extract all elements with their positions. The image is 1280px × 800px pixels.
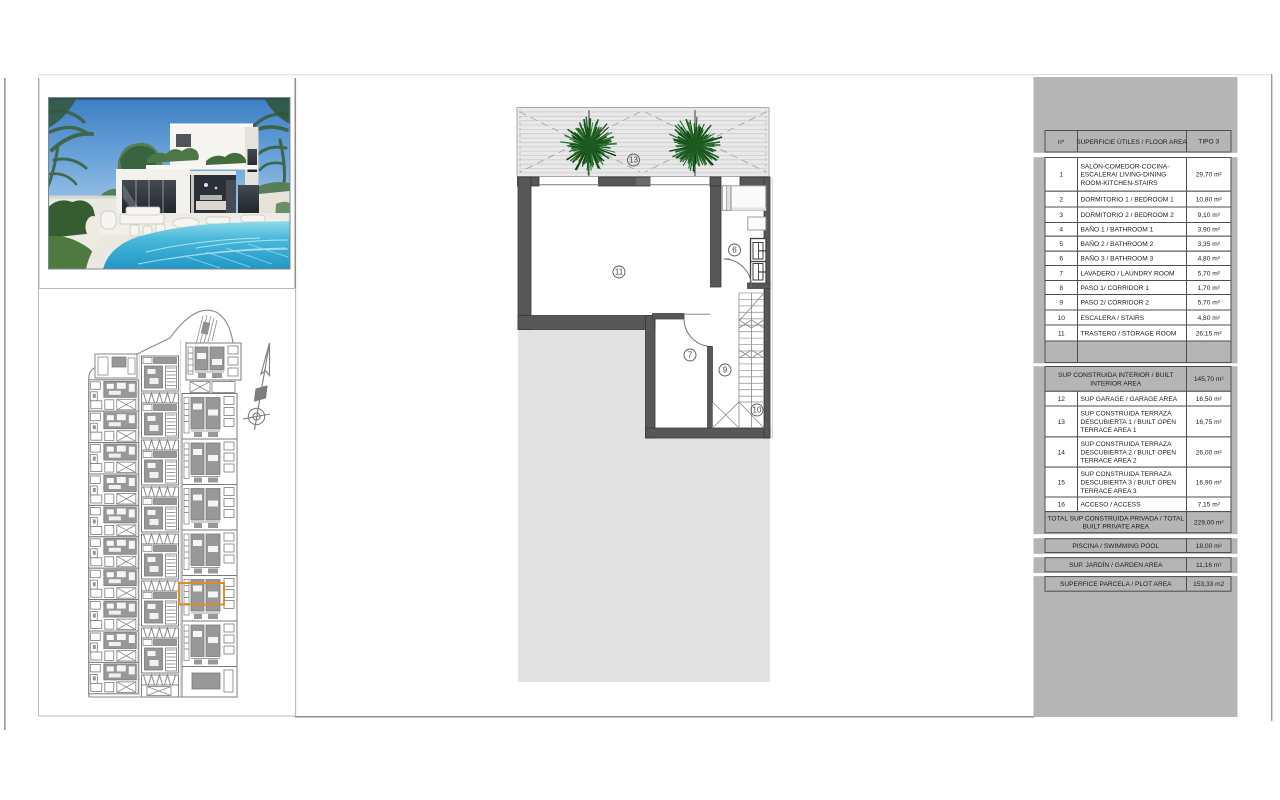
svg-text:229,00 m²: 229,00 m² (1194, 520, 1224, 527)
svg-text:SUPERFICIE ÚTILES / FLOOR AREA: SUPERFICIE ÚTILES / FLOOR AREA (1076, 137, 1187, 146)
svg-text:15: 15 (1058, 479, 1066, 486)
svg-text:DORMITORIO 2 / BEDROOM 2: DORMITORIO 2 / BEDROOM 2 (1081, 212, 1175, 219)
svg-text:ROOM-KITCHEN-STAIRS: ROOM-KITCHEN-STAIRS (1081, 180, 1159, 187)
svg-text:TERRACE AREA 2: TERRACE AREA 2 (1081, 458, 1137, 465)
svg-text:BAÑO 2 / BATHROOM 2: BAÑO 2 / BATHROOM 2 (1081, 239, 1154, 248)
svg-text:14: 14 (1058, 449, 1066, 456)
svg-text:TIPO 3: TIPO 3 (1198, 139, 1219, 146)
svg-text:12: 12 (1058, 396, 1066, 403)
svg-text:11,16 m²: 11,16 m² (1196, 562, 1222, 569)
svg-text:16,75 m²: 16,75 m² (1196, 419, 1223, 426)
svg-text:153,33 m2: 153,33 m2 (1193, 581, 1224, 588)
svg-text:16,50 m²: 16,50 m² (1196, 396, 1223, 403)
svg-text:6: 6 (1059, 256, 1063, 263)
svg-text:DORMITORIO 1 / BEDROOM 1: DORMITORIO 1 / BEDROOM 1 (1081, 196, 1175, 203)
svg-text:BAÑO 3 / BATHROOM 3: BAÑO 3 / BATHROOM 3 (1081, 254, 1154, 263)
svg-text:5,70 m²: 5,70 m² (1198, 300, 1221, 307)
svg-text:DESCUBIERTA 3 / BUILT OPEN: DESCUBIERTA 3 / BUILT OPEN (1081, 479, 1177, 486)
svg-text:TERRACE AREA 3: TERRACE AREA 3 (1081, 488, 1137, 495)
svg-text:SUP CONSTRUIDA TERRAZA: SUP CONSTRUIDA TERRAZA (1081, 471, 1173, 478)
svg-text:ACCESO / ACCESS: ACCESO / ACCESS (1081, 502, 1142, 509)
svg-text:3,35 m²: 3,35 m² (1198, 241, 1221, 248)
svg-text:7: 7 (688, 351, 693, 360)
svg-text:7: 7 (1059, 270, 1063, 277)
svg-text:16,90 m²: 16,90 m² (1196, 479, 1223, 486)
svg-text:16: 16 (1058, 502, 1066, 509)
svg-text:8: 8 (1059, 285, 1063, 292)
svg-text:BUILT PRIVATE AREA: BUILT PRIVATE AREA (1082, 524, 1149, 531)
svg-text:7,15 m²: 7,15 m² (1198, 502, 1221, 509)
svg-text:ESCALERA/ LIVING-DINING: ESCALERA/ LIVING-DINING (1081, 172, 1167, 179)
svg-text:26,15 m²: 26,15 m² (1196, 330, 1223, 337)
svg-text:13: 13 (629, 156, 638, 165)
svg-text:18,00 m²: 18,00 m² (1196, 543, 1223, 550)
svg-text:TERRACE AREA 1: TERRACE AREA 1 (1081, 427, 1137, 434)
svg-text:PISCINA / SWIMMING POOL: PISCINA / SWIMMING POOL (1072, 543, 1159, 550)
svg-text:SUP GARAGE / GARAGE AREA: SUP GARAGE / GARAGE AREA (1081, 396, 1178, 403)
svg-text:1,70 m²: 1,70 m² (1198, 285, 1221, 292)
svg-text:SUP CONSTRUIDA TERRAZA: SUP CONSTRUIDA TERRAZA (1081, 441, 1173, 448)
svg-text:SALÓN-COMEDOR-COCINA-: SALÓN-COMEDOR-COCINA- (1081, 161, 1170, 170)
svg-text:SUP CONSTRUIDA INTERIOR / BUIL: SUP CONSTRUIDA INTERIOR / BUILT (1058, 372, 1174, 379)
svg-text:5,70 m²: 5,70 m² (1198, 270, 1221, 277)
svg-text:PASO 1/ CORRIDOR 1: PASO 1/ CORRIDOR 1 (1081, 285, 1150, 292)
svg-text:13: 13 (1058, 419, 1066, 426)
svg-text:11: 11 (615, 268, 624, 277)
svg-text:TRASTERO / STORAGE ROOM: TRASTERO / STORAGE ROOM (1081, 330, 1177, 337)
svg-text:11: 11 (1058, 330, 1065, 337)
svg-text:10: 10 (1058, 315, 1066, 322)
svg-text:9,10 m²: 9,10 m² (1198, 212, 1221, 219)
svg-text:145,70 m²: 145,70 m² (1194, 376, 1224, 383)
svg-text:SUP CONSTRUIDA TERRAZA: SUP CONSTRUIDA TERRAZA (1081, 410, 1173, 417)
svg-text:5: 5 (1059, 241, 1063, 248)
svg-text:DESCUBIERTA 2 / BUILT OPEN: DESCUBIERTA 2 / BUILT OPEN (1081, 449, 1177, 456)
svg-text:10: 10 (753, 406, 762, 415)
svg-text:nº: nº (1058, 139, 1065, 146)
svg-text:SUPERFICE PARCELA / PLOT AREA: SUPERFICE PARCELA / PLOT AREA (1060, 581, 1172, 588)
svg-text:2: 2 (1059, 196, 1063, 203)
svg-text:SUP. JARDÍN / GARDEN AREA: SUP. JARDÍN / GARDEN AREA (1069, 560, 1163, 569)
svg-text:9: 9 (1059, 300, 1063, 307)
svg-text:10,80 m²: 10,80 m² (1196, 196, 1223, 203)
svg-text:9: 9 (723, 366, 728, 375)
svg-text:INTERIOR AREA: INTERIOR AREA (1090, 380, 1142, 387)
svg-text:DESCUBIERTA 1 / BUILT OPEN: DESCUBIERTA 1 / BUILT OPEN (1081, 419, 1177, 426)
svg-text:LAVADERO / LAUNDRY ROOM: LAVADERO / LAUNDRY ROOM (1081, 270, 1175, 277)
svg-text:1: 1 (1059, 172, 1063, 179)
svg-text:ESCALERA / STAIRS: ESCALERA / STAIRS (1081, 315, 1145, 322)
svg-text:4: 4 (1059, 227, 1063, 234)
svg-text:PASO 2/ CORRIDOR 2: PASO 2/ CORRIDOR 2 (1081, 300, 1150, 307)
svg-text:26,00 m²: 26,00 m² (1196, 449, 1223, 456)
svg-text:TOTAL SUP CONSTRUIDA PRIVADA /: TOTAL SUP CONSTRUIDA PRIVADA / TOTAL (1047, 515, 1184, 522)
svg-text:4,80 m²: 4,80 m² (1198, 315, 1221, 322)
svg-text:29,70 m²: 29,70 m² (1196, 172, 1223, 179)
svg-text:BAÑO 1 / BATHROOM 1: BAÑO 1 / BATHROOM 1 (1081, 225, 1154, 234)
svg-text:6: 6 (732, 246, 737, 255)
svg-text:3,90 m²: 3,90 m² (1198, 227, 1221, 234)
svg-text:4,80 m²: 4,80 m² (1198, 256, 1221, 263)
svg-text:3: 3 (1059, 212, 1063, 219)
